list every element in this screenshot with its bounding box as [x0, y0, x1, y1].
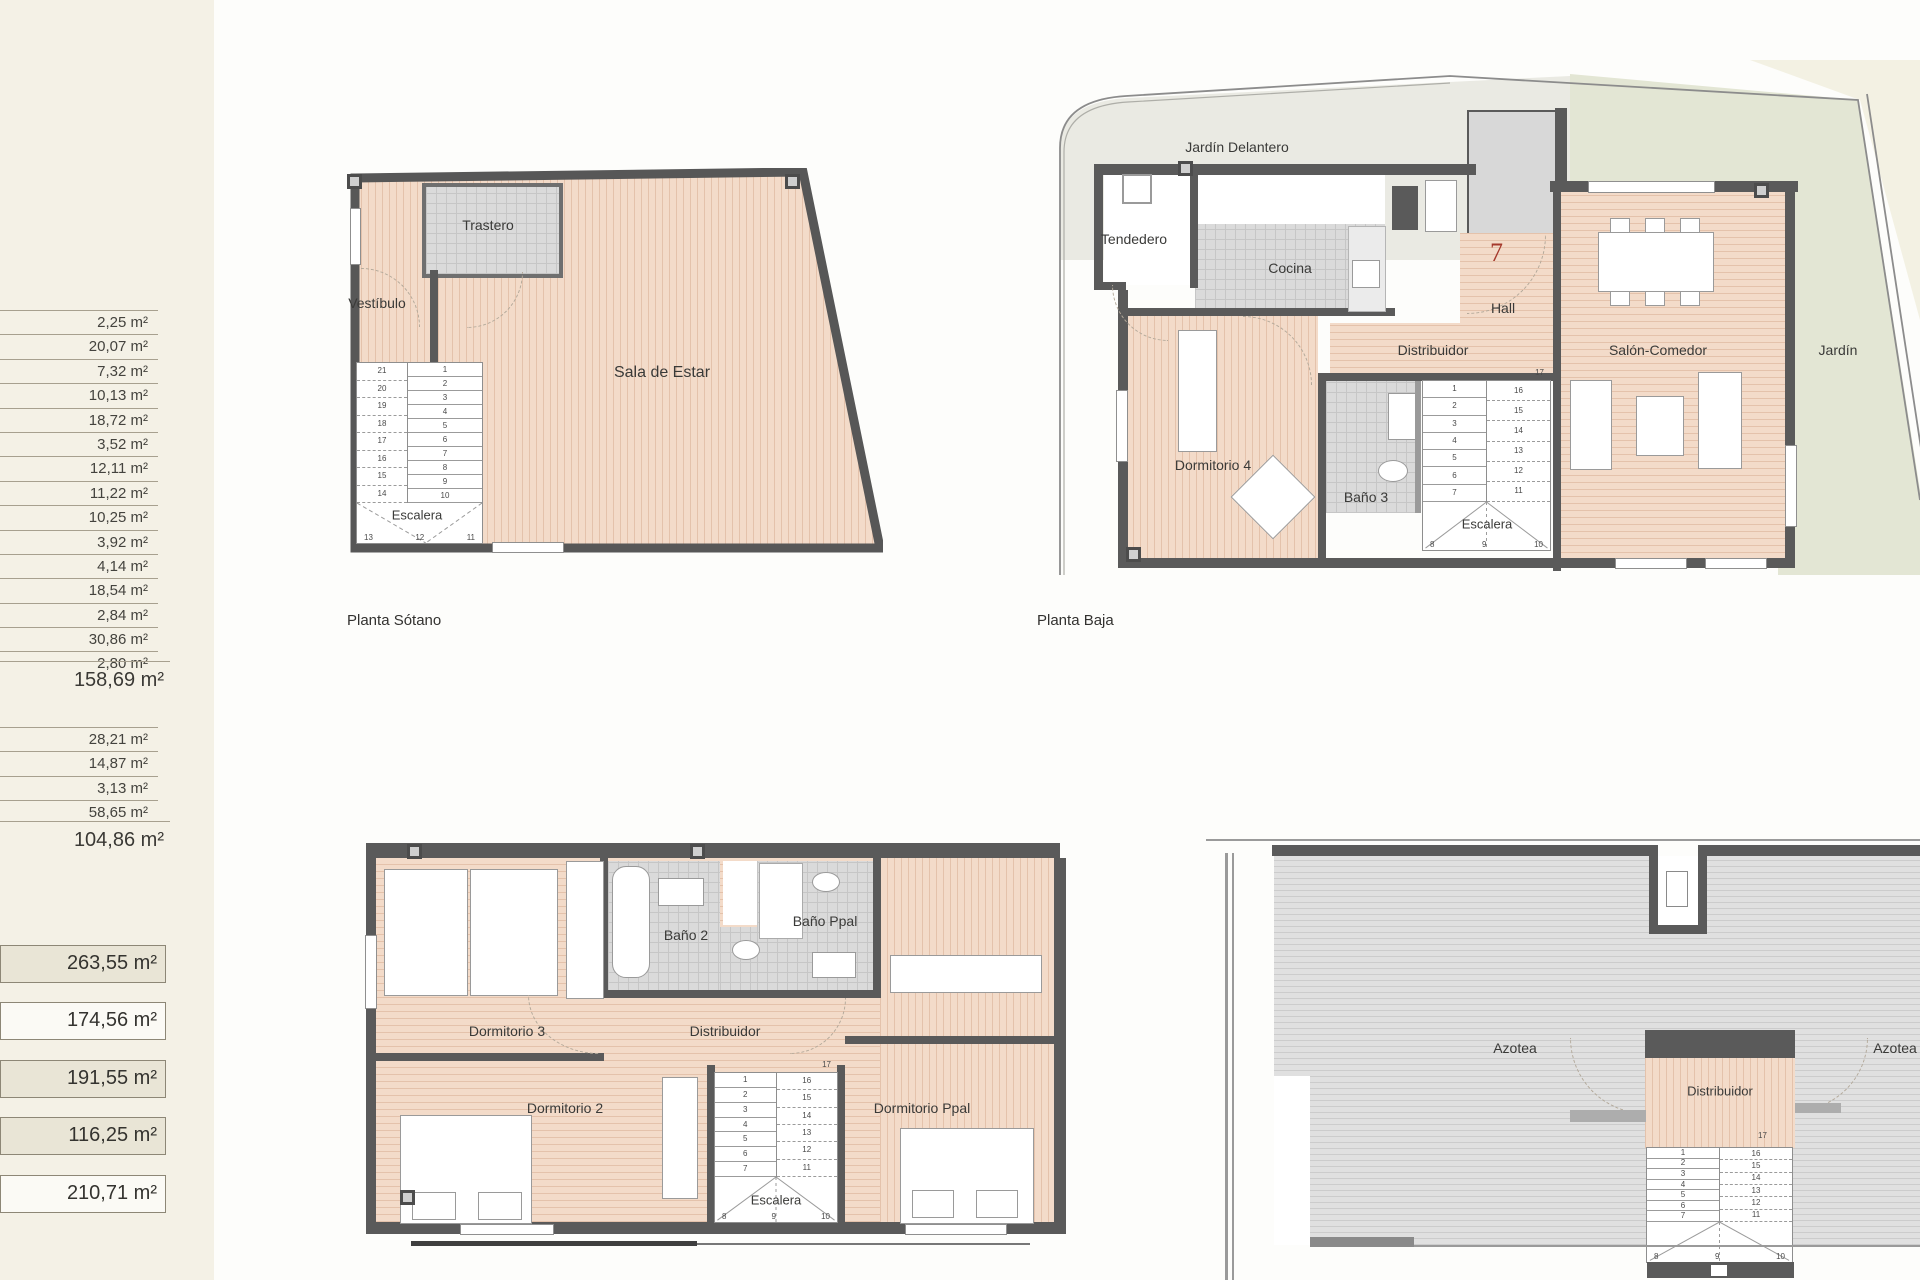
wall [1190, 168, 1198, 288]
stair-step: 8 [1430, 540, 1434, 549]
floorplan-sheet: 2,25 m²20,07 m²7,32 m²10,13 m²18,72 m²3,… [0, 0, 1920, 1280]
wall-anchor [1754, 183, 1769, 198]
stair-step: 1 [1423, 381, 1486, 398]
room-distribuidor [1645, 1058, 1795, 1148]
roof-notch [1274, 1076, 1310, 1245]
stair-step: 16 [1720, 1148, 1792, 1160]
stair-steps-lower: 12345678910 [407, 363, 482, 503]
area-total-group2: 104,86 m² [0, 821, 170, 858]
bathtub [612, 866, 650, 978]
area-row: 20,07 m² [0, 334, 158, 358]
window [365, 935, 377, 1009]
stair-step: 6 [408, 433, 482, 447]
room-label-dormitorio-ppal: Dormitorio Ppal [874, 1100, 970, 1116]
wall [1318, 378, 1326, 560]
desk [1178, 330, 1217, 452]
pillow [912, 1190, 954, 1218]
window [460, 1224, 554, 1235]
wall-anchor [1178, 161, 1193, 176]
window [1785, 445, 1797, 527]
area-row: 3,52 m² [0, 432, 158, 456]
sink [1388, 393, 1416, 440]
stair-step: 1 [408, 363, 482, 377]
room-label-jardin-delantero: Jardín Delantero [1185, 139, 1289, 155]
room-label-tendedero: Tendedero [1101, 231, 1167, 247]
room-label-vestibulo: Vestíbulo [348, 295, 406, 311]
stair-step: 12 [415, 533, 424, 542]
stair-step: 9 [1482, 540, 1486, 549]
room-label-dormitorio-3: Dormitorio 3 [469, 1023, 545, 1039]
summary-box-3: 191,55 m² [0, 1060, 166, 1098]
wall-anchor [347, 174, 362, 189]
door [1711, 1265, 1727, 1276]
stair-winder-numbers: 8910 [1423, 540, 1550, 549]
sofa [1698, 372, 1742, 469]
area-row: 3,13 m² [0, 776, 158, 800]
closet [566, 861, 604, 999]
stair-step: 10 [1534, 540, 1543, 549]
stair-step: 14 [1720, 1173, 1792, 1185]
closet [723, 861, 757, 925]
room-label-escalera: Escalera [751, 1193, 802, 1208]
bed [470, 869, 558, 996]
area-row: 28,21 m² [0, 727, 158, 751]
stair-step: 3 [1647, 1169, 1719, 1180]
plan-planta-sotano: 2120191817161514 12345678910 131211 Esca… [347, 168, 883, 554]
threshold [1570, 1110, 1646, 1122]
chair [1610, 218, 1630, 233]
sink [658, 878, 704, 906]
window [1705, 558, 1767, 569]
stair-step: 8 [408, 461, 482, 475]
entrance-porch [1467, 110, 1557, 237]
window [1615, 558, 1687, 569]
wall [707, 1065, 715, 1222]
summary-box-total-built: 263,55 m² [0, 945, 166, 983]
room-label-bano-3: Baño 3 [1344, 489, 1388, 505]
stair-step: 12 [1487, 462, 1550, 482]
caption-planta-sotano: Planta Sótano [347, 612, 441, 629]
site-line [1232, 853, 1234, 1280]
room-label-jardin: Jardín [1819, 342, 1858, 358]
skylight-inner [1666, 871, 1688, 907]
stair-flights: 2120191817161514 12345678910 [357, 363, 482, 503]
dining-table [1598, 232, 1714, 292]
chair [1610, 291, 1630, 306]
unit-number: 7 [1490, 238, 1503, 268]
stair-step: 14 [777, 1108, 838, 1125]
room-label-dormitorio-4: Dormitorio 4 [1175, 457, 1251, 473]
stair-steps-upper: 161514131211 [776, 1073, 838, 1177]
plan-azotea: 17 1234567 161514131211 8910 Azotea Azot… [1206, 833, 1920, 1280]
window [350, 208, 361, 265]
room-label-azotea-right: Azotea [1873, 1040, 1917, 1056]
wall [1094, 164, 1103, 290]
skylight-wall [1649, 845, 1658, 931]
pillow [478, 1192, 522, 1220]
wall [374, 1053, 604, 1061]
area-row: 2,84 m² [0, 603, 158, 627]
stair-step: 11 [1487, 482, 1550, 502]
room-label-bano-ppal: Baño Ppal [793, 913, 858, 929]
summary-box-4: 116,25 m² [0, 1117, 166, 1155]
closet-block [1392, 186, 1418, 230]
stair-winder-numbers: 131211 [357, 533, 482, 542]
stair-step: 4 [715, 1118, 776, 1133]
wall [837, 1065, 845, 1222]
wall [1118, 558, 1795, 568]
wall [1700, 845, 1920, 856]
stair-step: 6 [1423, 467, 1486, 484]
room-label-distribuidor: Distribuidor [1687, 1084, 1753, 1099]
wall [1310, 1237, 1414, 1247]
stair-step: 5 [1647, 1190, 1719, 1201]
room-label-escalera: Escalera [1462, 517, 1513, 532]
boundary-line [697, 1243, 1030, 1245]
stair-step: 16 [777, 1073, 838, 1090]
skylight-wall [1649, 925, 1707, 934]
stair-step: 16 [1487, 381, 1550, 401]
wall-anchor [1126, 547, 1141, 562]
stair-step: 13 [777, 1125, 838, 1142]
area-row: 14,87 m² [0, 751, 158, 775]
stair-step: 7 [715, 1162, 776, 1177]
wall [845, 1036, 1054, 1044]
wall [1555, 108, 1567, 183]
room-label-distribuidor: Distribuidor [1398, 342, 1469, 358]
caption-planta-baja: Planta Baja [1037, 612, 1114, 629]
chair [1680, 218, 1700, 233]
stair-step: 6 [715, 1147, 776, 1162]
wardrobe [890, 955, 1042, 993]
room-label-hall: Hall [1491, 300, 1515, 316]
pillow [412, 1192, 456, 1220]
stair-step: 13 [364, 533, 373, 542]
stair-step: 4 [1647, 1180, 1719, 1191]
stair-step: 15 [1487, 401, 1550, 421]
stair-flights: 1234567 161514131211 [1647, 1148, 1792, 1222]
stair-step: 17 [357, 433, 407, 451]
stair-step: 7 [408, 447, 482, 461]
wall [1645, 1030, 1795, 1058]
window [1116, 390, 1128, 462]
stair-step: 10 [1776, 1252, 1785, 1261]
room-label-escalera: Escalera [392, 508, 443, 523]
wall [1553, 181, 1561, 571]
area-table-group2: 28,21 m²14,87 m²3,13 m²58,65 m² [0, 727, 158, 825]
summary-box-2: 174,56 m² [0, 1002, 166, 1040]
chair [1645, 291, 1665, 306]
stair-step: 15 [357, 468, 407, 486]
stair-step: 1 [715, 1073, 776, 1088]
stair-step: 17 [822, 1060, 831, 1069]
stair-steps-upper: 161514131211 [1719, 1148, 1792, 1222]
stair-step: 16 [357, 451, 407, 469]
room-label-bano-2: Baño 2 [664, 927, 708, 943]
area-row: 18,72 m² [0, 408, 158, 432]
stair-steps-lower: 1234567 [1423, 381, 1486, 502]
wall [366, 843, 1060, 858]
area-row: 3,92 m² [0, 530, 158, 554]
wall-anchor [407, 844, 422, 859]
room-label-trastero: Trastero [462, 217, 514, 233]
area-row: 30,86 m² [0, 627, 158, 651]
boundary-line [411, 1241, 697, 1246]
stair-step: 17 [1758, 1131, 1767, 1140]
stair-step: 10 [821, 1212, 830, 1221]
wall [1272, 845, 1655, 856]
stair-winder: 8910 [1647, 1222, 1792, 1262]
stair-step: 2 [1423, 398, 1486, 415]
site-line [1414, 1245, 1920, 1247]
stair-step: 13 [1720, 1185, 1792, 1197]
skylight-wall [1698, 845, 1707, 931]
wall [600, 990, 880, 998]
wall [1054, 858, 1066, 1222]
room-label-cocina: Cocina [1268, 260, 1312, 276]
stair-step: 1 [1647, 1148, 1719, 1159]
stair-step: 9 [408, 475, 482, 489]
stair-step: 9 [1715, 1252, 1719, 1261]
coffee-table [1636, 396, 1684, 456]
summary-box-5: 210,71 m² [0, 1175, 166, 1213]
stair-step: 6 [1647, 1201, 1719, 1212]
wall [430, 270, 438, 378]
area-row: 11,22 m² [0, 481, 158, 505]
washer [1122, 174, 1152, 204]
wall-anchor [785, 174, 800, 189]
room-label-salon-comedor: Salón-Comedor [1609, 342, 1707, 358]
stair-step: 7 [1423, 485, 1486, 502]
area-total-group1: 158,69 m² [0, 661, 170, 698]
site-line [1206, 839, 1920, 841]
window [905, 1224, 1007, 1235]
stove [1352, 260, 1380, 288]
stair-steps-lower: 1234567 [715, 1073, 776, 1177]
room-label-azotea-left: Azotea [1493, 1040, 1537, 1056]
stair-step: 5 [1423, 450, 1486, 467]
stair-step: 17 [1535, 368, 1544, 377]
stair-step: 2 [715, 1088, 776, 1103]
toilet [732, 940, 760, 960]
plan-planta-baja: 17 1234567 161514131211 8910 Jardín Dela… [1030, 60, 1920, 580]
wall-anchor [400, 1190, 415, 1205]
wall [873, 858, 881, 998]
stair-step: 3 [715, 1103, 776, 1118]
plan-planta-primera: 17 1234567 161514131211 8910 Dormitorio … [360, 840, 1070, 1240]
stair-step: 10 [408, 489, 482, 503]
stair-winder-numbers: 8910 [715, 1212, 837, 1221]
stair-step: 4 [1423, 433, 1486, 450]
stair-step: 11 [467, 533, 475, 542]
stair-step: 8 [1654, 1252, 1658, 1261]
stair-step: 7 [1647, 1211, 1719, 1222]
stair-step: 5 [715, 1132, 776, 1147]
window [492, 542, 564, 553]
utility-zone [1195, 172, 1385, 224]
area-row: 18,54 m² [0, 578, 158, 602]
closet [1425, 180, 1457, 232]
stair-step: 2 [1647, 1159, 1719, 1170]
stair-step: 11 [777, 1160, 838, 1177]
chair [1645, 218, 1665, 233]
pillow [976, 1190, 1018, 1218]
stair-step: 12 [777, 1142, 838, 1159]
stair-winder-numbers: 8910 [1647, 1252, 1792, 1261]
stair-step: 14 [357, 486, 407, 504]
chair [1680, 291, 1700, 306]
toilet [812, 872, 840, 892]
stair-step: 18 [357, 416, 407, 434]
stair-step: 12 [1720, 1197, 1792, 1209]
threshold [1795, 1103, 1841, 1113]
stair-step: 20 [357, 381, 407, 399]
stair-step: 15 [777, 1090, 838, 1107]
stair-step: 5 [408, 419, 482, 433]
stair-step: 21 [357, 363, 407, 381]
room-label-sala-de-estar: Sala de Estar [614, 364, 710, 382]
stair-step: 13 [1487, 442, 1550, 462]
window [1588, 181, 1715, 193]
area-row: 10,25 m² [0, 505, 158, 529]
site-line [1225, 853, 1228, 1280]
stair-flights: 1234567 161514131211 [715, 1073, 837, 1177]
sink [812, 952, 856, 978]
room-label-dormitorio-2: Dormitorio 2 [527, 1100, 603, 1116]
stair-steps-upper: 2120191817161514 [357, 363, 407, 503]
area-row: 12,11 m² [0, 456, 158, 480]
stair-step: 2 [408, 377, 482, 391]
sofa [1570, 380, 1612, 470]
stair-flights: 1234567 161514131211 [1423, 381, 1550, 502]
bed [384, 869, 468, 996]
stair-step: 8 [722, 1212, 726, 1221]
stair-step: 14 [1487, 421, 1550, 441]
stair-step: 15 [1720, 1160, 1792, 1172]
stair-step: 3 [408, 391, 482, 405]
area-row: 10,13 m² [0, 383, 158, 407]
stair-step: 4 [408, 405, 482, 419]
stair-step: 3 [1423, 416, 1486, 433]
area-row: 4,14 m² [0, 554, 158, 578]
stair-steps-lower: 1234567 [1647, 1148, 1719, 1222]
stair-step: 9 [772, 1212, 776, 1221]
toilet [1378, 460, 1408, 482]
stair-step: 19 [357, 398, 407, 416]
stair-steps-upper: 161514131211 [1486, 381, 1550, 502]
room-label-distribuidor: Distribuidor [690, 1023, 761, 1039]
wall-anchor [690, 844, 705, 859]
area-table-group1: 2,25 m²20,07 m²7,32 m²10,13 m²18,72 m²3,… [0, 310, 158, 676]
area-row: 2,25 m² [0, 310, 158, 334]
wall [366, 858, 376, 1222]
wall [1318, 373, 1553, 381]
stair-step: 11 [1720, 1210, 1792, 1222]
wardrobe [662, 1077, 698, 1199]
area-row: 7,32 m² [0, 359, 158, 383]
